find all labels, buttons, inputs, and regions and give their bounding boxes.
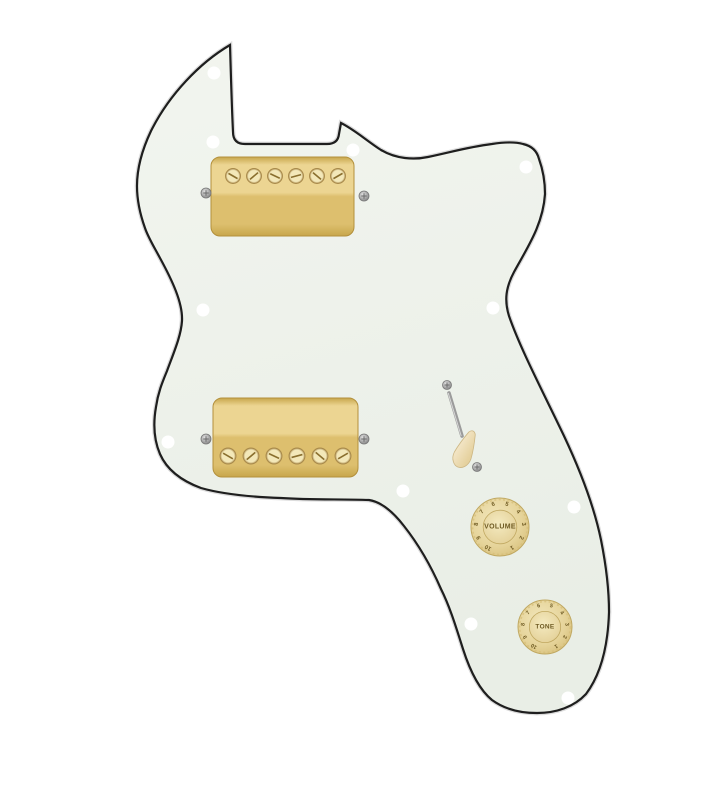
volume-knob-label: VOLUME (484, 524, 516, 531)
mount-hole-3 (347, 144, 360, 157)
bridge-pickup-pole-screw-5 (312, 448, 328, 464)
bridge-pickup-cover (213, 398, 358, 477)
mount-hole-8 (397, 485, 410, 498)
neck-humbucker-pickup (201, 157, 369, 236)
mount-hole-7 (162, 436, 175, 449)
mount-hole-6 (487, 302, 500, 315)
neck-pickup-pole-screw-4 (289, 169, 304, 184)
bridge-pickup-pole-screw-4 (289, 448, 305, 464)
tone-knob: 12345678910TONE (518, 600, 572, 654)
mount-hole-2 (207, 136, 220, 149)
mount-hole-4 (520, 161, 533, 174)
switch-screw-bottom (473, 463, 482, 472)
bridge-pickup-mount-screw-1 (201, 434, 211, 444)
mount-hole-5 (197, 304, 210, 317)
volume-knob: 12345678910VOLUME (471, 498, 529, 556)
neck-pickup-mount-screw-2 (359, 191, 369, 201)
bridge-pickup-pole-screw-6 (335, 448, 351, 464)
mount-hole-11 (562, 692, 575, 705)
mount-hole-1 (208, 67, 221, 80)
bridge-pickup-pole-screw-3 (266, 448, 282, 464)
bridge-pickup-pole-screw-1 (220, 448, 236, 464)
switch-screw-top (443, 381, 452, 390)
neck-pickup-pole-screw-5 (310, 169, 325, 184)
neck-pickup-pole-screw-3 (268, 169, 283, 184)
neck-pickup-mount-screw-1 (201, 188, 211, 198)
neck-pickup-pole-screw-1 (226, 169, 241, 184)
bridge-pickup-pole-screw-2 (243, 448, 259, 464)
neck-pickup-pole-screw-2 (247, 169, 262, 184)
mount-hole-9 (568, 501, 581, 514)
tone-knob-label: TONE (535, 624, 555, 631)
bridge-humbucker-pickup (201, 398, 369, 477)
pickguard-product-photo: 12345678910VOLUME 12345678910TONE (0, 0, 720, 800)
mount-hole-10 (465, 618, 478, 631)
product-photo-stage: 12345678910VOLUME 12345678910TONE (0, 0, 720, 800)
neck-pickup-pole-screw-6 (331, 169, 346, 184)
bridge-pickup-mount-screw-2 (359, 434, 369, 444)
